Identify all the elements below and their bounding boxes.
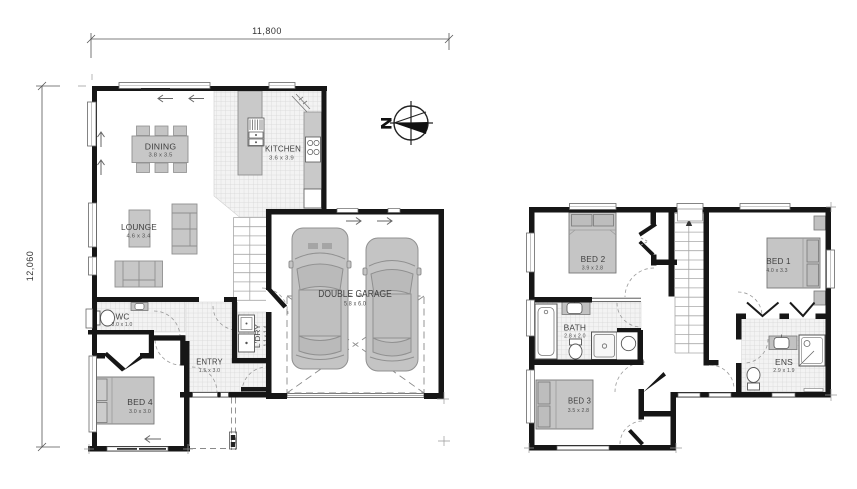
svg-text:4.0 x 3.3: 4.0 x 3.3 (766, 268, 788, 274)
svg-text:BED 2: BED 2 (581, 254, 606, 264)
svg-text:3.9 x 2.8: 3.9 x 2.8 (582, 266, 604, 272)
svg-text:BATH: BATH (564, 322, 587, 332)
svg-text:BED 3: BED 3 (568, 396, 591, 406)
svg-text:3.0 x 3.0: 3.0 x 3.0 (129, 409, 151, 415)
svg-text:4.6 x 3.4: 4.6 x 3.4 (127, 233, 152, 239)
svg-text:L'DRY: L'DRY (253, 324, 262, 348)
svg-text:BED 1: BED 1 (766, 256, 791, 266)
svg-text:DINING: DINING (145, 142, 177, 152)
svg-text:KITCHEN: KITCHEN (265, 144, 301, 154)
svg-text:3.6 x 3.9: 3.6 x 3.9 (269, 156, 294, 162)
svg-text:BED 4: BED 4 (127, 397, 153, 407)
svg-text:LOUNGE: LOUNGE (121, 222, 157, 232)
svg-text:2.9 x 1.9: 2.9 x 1.9 (773, 368, 795, 374)
svg-text:DOUBLE GARAGE: DOUBLE GARAGE (318, 289, 392, 300)
svg-text:ENTRY: ENTRY (196, 357, 223, 367)
svg-text:1.5 x 3.0: 1.5 x 3.0 (199, 368, 221, 374)
svg-text:11,800: 11,800 (252, 26, 282, 36)
svg-text:3.5 x 2.8: 3.5 x 2.8 (568, 408, 590, 414)
svg-text:ENS: ENS (775, 357, 793, 367)
svg-text:WC: WC (116, 311, 130, 321)
svg-text:5.8 x 6.0: 5.8 x 6.0 (344, 300, 366, 307)
svg-text:3.0 x 1.0: 3.0 x 1.0 (112, 322, 133, 328)
svg-text:12,060: 12,060 (25, 251, 35, 282)
svg-text:3.8 x 3.5: 3.8 x 3.5 (149, 153, 174, 159)
svg-text:2.8 x 2.0: 2.8 x 2.0 (564, 333, 586, 339)
